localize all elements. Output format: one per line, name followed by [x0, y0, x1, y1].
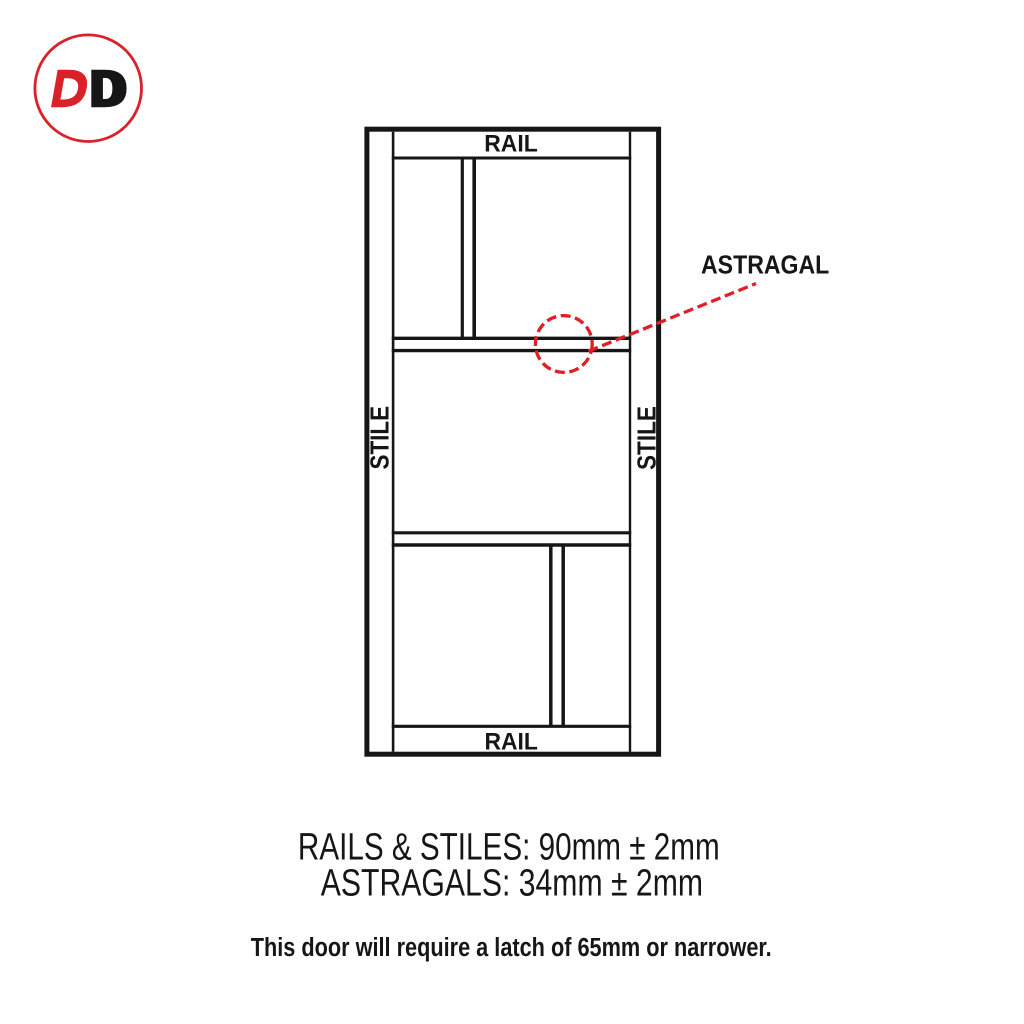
svg-text:STILE: STILE [633, 406, 661, 470]
svg-text:ASTRAGALS: 34mm ± 2mm: ASTRAGALS: 34mm ± 2mm [321, 863, 703, 905]
svg-text:RAIL: RAIL [484, 730, 538, 756]
svg-text:ASTRAGAL: ASTRAGAL [701, 250, 829, 280]
svg-text:RAIL: RAIL [484, 132, 538, 158]
svg-text:This door will require a latch: This door will require a latch of 65mm o… [251, 932, 772, 962]
svg-text:STILE: STILE [366, 406, 394, 470]
